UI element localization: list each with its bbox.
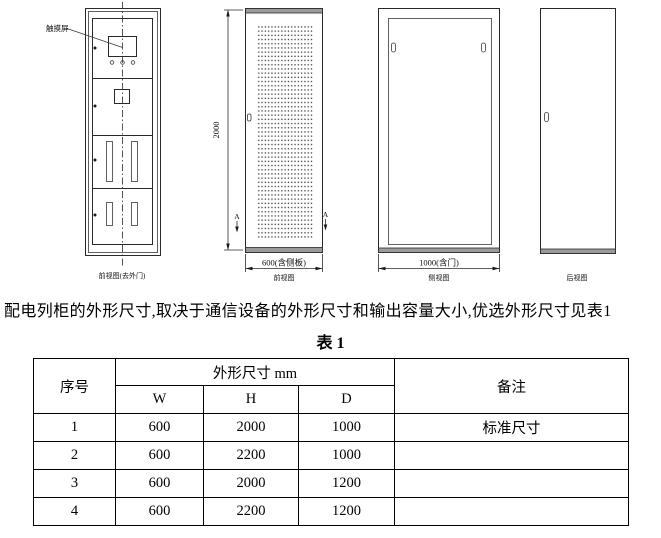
side-view-drawing: 1000(含门) 侧视图 <box>379 9 500 283</box>
dimensions-table: 序号 外形尺寸 mm 备注 W H D 1 600 2000 1000 标准尺寸… <box>33 358 629 526</box>
table-title: 表 1 <box>0 329 661 353</box>
bottom-rail <box>379 248 500 253</box>
header-w: W <box>116 386 204 414</box>
door-handle <box>248 114 252 121</box>
section-arrow <box>235 227 239 233</box>
touchscreen-label: 触摸屏 <box>46 23 69 33</box>
breaker-slot <box>107 203 113 226</box>
cell-remark <box>395 442 629 470</box>
dimension-arrow <box>226 244 229 251</box>
bottom-rail <box>246 248 323 253</box>
cabinet-outer-frame <box>86 9 161 256</box>
front-view-no-door-drawing: 触摸屏 前视图(去外门) <box>46 2 161 280</box>
bottom-rail <box>541 249 616 254</box>
breaker-slot <box>107 142 113 182</box>
cell-remark <box>395 470 629 498</box>
height-dimension-text: 2000 <box>211 122 221 139</box>
cell-h: 2200 <box>204 498 299 526</box>
view1-caption: 前视图(去外门) <box>99 271 146 280</box>
cabinet-views-figure: 触摸屏 前视图(去外门) 2000 A A <box>0 0 661 292</box>
meter-unit-rect <box>115 90 130 104</box>
indicator-lamp <box>131 61 135 65</box>
view3-caption: 侧视图 <box>429 273 450 282</box>
perforated-door-panel <box>257 25 313 238</box>
table-row: 3 600 2000 1200 <box>34 470 629 498</box>
cell-d: 1200 <box>299 470 395 498</box>
hinge-dot <box>94 105 97 108</box>
breaker-slot <box>132 142 138 182</box>
cell-d: 1200 <box>299 498 395 526</box>
door-handle <box>545 113 549 122</box>
header-no: 序号 <box>34 359 116 414</box>
side-panel <box>389 19 492 245</box>
cell-no: 4 <box>34 498 116 526</box>
cell-h: 2000 <box>204 470 299 498</box>
header-remark: 备注 <box>395 359 629 414</box>
cell-remark <box>395 498 629 526</box>
header-dims-group: 外形尺寸 mm <box>116 359 395 386</box>
panel-latch <box>392 43 396 52</box>
cell-w: 600 <box>116 442 204 470</box>
cell-d: 1000 <box>299 442 395 470</box>
table-row: 4 600 2200 1200 <box>34 498 629 526</box>
dimension-arrow <box>316 267 323 270</box>
dimension-arrow <box>379 267 386 270</box>
table-row: 2 600 2200 1000 <box>34 442 629 470</box>
cell-no: 2 <box>34 442 116 470</box>
panel-latch <box>482 43 486 52</box>
header-h: H <box>204 386 299 414</box>
table-row: 1 600 2000 1000 标准尺寸 <box>34 414 629 442</box>
dimension-arrow <box>246 267 253 270</box>
view4-caption: 后视图 <box>567 273 588 282</box>
dimension-arrow <box>226 10 229 17</box>
cell-w: 600 <box>116 414 204 442</box>
front-view-drawing: 2000 A A 600(含侧板) 前视图 <box>211 9 329 283</box>
cell-h: 2000 <box>204 414 299 442</box>
section-marker-a-left: A <box>234 212 240 221</box>
cabinet-inner-frame <box>89 12 158 253</box>
leader-line <box>67 29 123 48</box>
body-paragraph: 配电列柜的外形尺寸,取决于通信设备的外形尺寸和输出容量大小,优选外形尺寸见表1 <box>4 297 659 321</box>
cell-d: 1000 <box>299 414 395 442</box>
dimension-arrow <box>493 267 500 270</box>
hinge-dot <box>94 159 97 162</box>
breaker-slot <box>132 203 138 226</box>
cell-remark: 标准尺寸 <box>395 414 629 442</box>
width-dimension-text: 600(含侧板) <box>262 258 306 268</box>
indicator-lamp <box>110 61 114 65</box>
cell-w: 600 <box>116 470 204 498</box>
section-marker-a-right: A <box>323 210 329 219</box>
cell-no: 3 <box>34 470 116 498</box>
cabinet-outer-frame <box>541 9 616 254</box>
view2-caption: 前视图 <box>274 273 295 282</box>
depth-dimension-text: 1000(含门) <box>419 258 459 268</box>
hinge-dot <box>94 47 97 50</box>
rear-view-drawing: 后视图 <box>541 9 616 283</box>
cell-w: 600 <box>116 498 204 526</box>
cell-no: 1 <box>34 414 116 442</box>
document-page: 触摸屏 前视图(去外门) 2000 A A <box>0 0 661 538</box>
header-d: D <box>299 386 395 414</box>
hinge-dot <box>94 214 97 217</box>
section-arrow <box>324 225 328 231</box>
cell-h: 2200 <box>204 442 299 470</box>
top-rail <box>246 9 323 14</box>
